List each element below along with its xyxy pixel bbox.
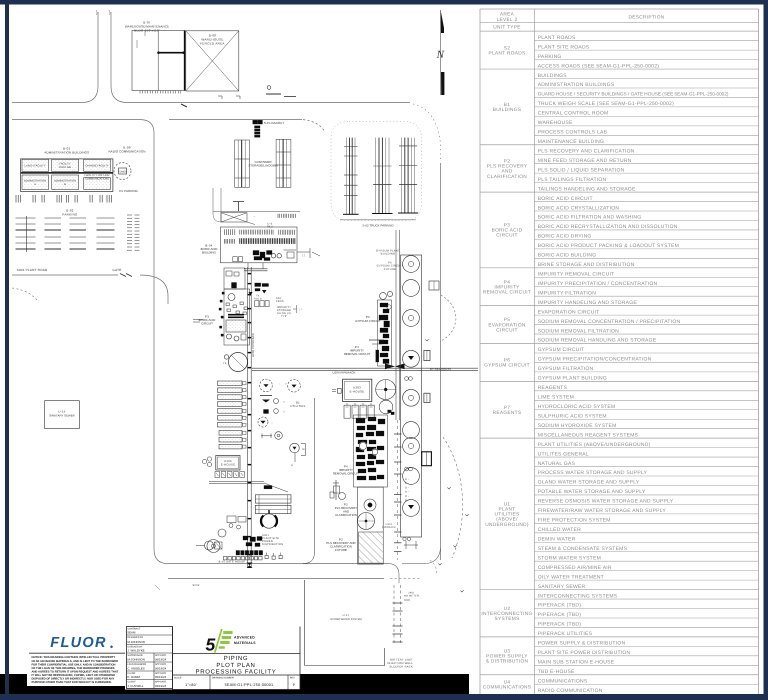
svg-text:PROCESS CONTROLS LAB: PROCESS CONTROLS LAB bbox=[538, 130, 608, 136]
svg-text:REAGENTS: REAGENTS bbox=[538, 385, 568, 391]
svg-text:BORIC ACID BUILDING: BORIC ACID BUILDING bbox=[538, 253, 597, 259]
svg-text:PURPOSE OTHER THAN THAT FOR WH: PURPOSE OTHER THAN THAT FOR WHICH IT IS … bbox=[32, 681, 112, 684]
svg-text:W: W bbox=[302, 448, 305, 451]
svg-text:ACCESS ROADS (SEE 5EAM-G1-PPL-: ACCESS ROADS (SEE 5EAM-G1-PPL-250-0002) bbox=[538, 63, 660, 69]
svg-text:BORIC ACID RECRYSTALLIZATION A: BORIC ACID RECRYSTALLIZATION AND DISSOLU… bbox=[538, 224, 678, 230]
svg-text:UNIT TYPE: UNIT TYPE bbox=[493, 25, 521, 31]
svg-text:IMPURITY: IMPURITY bbox=[494, 284, 520, 290]
svg-text:PIPERACK (TBD): PIPERACK (TBD) bbox=[538, 622, 582, 628]
svg-text:BUILDING: BUILDING bbox=[202, 251, 216, 255]
svg-text:NOTICE: THIS DRAWING CONTAINS: NOTICE: THIS DRAWING CONTAINS INTELLECTU… bbox=[32, 656, 116, 659]
svg-text:ADMINISTRATION BUILDINGS: ADMINISTRATION BUILDINGS bbox=[44, 151, 89, 155]
svg-text:06/19/24: 06/19/24 bbox=[155, 684, 167, 688]
svg-text:5: 5 bbox=[206, 635, 216, 655]
svg-text:BORIC ACID FILTRATION AND WASH: BORIC ACID FILTRATION AND WASHING bbox=[538, 215, 642, 221]
svg-text:FACILITY FIRST AID/: FACILITY FIRST AID/ bbox=[85, 174, 110, 177]
svg-text:PIPERACK UTILITIES: PIPERACK UTILITIES bbox=[538, 631, 593, 637]
svg-text:P6: P6 bbox=[504, 358, 510, 364]
svg-text:DEMIN WATER: DEMIN WATER bbox=[538, 536, 576, 542]
svg-text:5EAM-G1-PPL-250-00001: 5EAM-G1-PPL-250-00001 bbox=[225, 683, 274, 687]
svg-text:DISPOSED OF DIRECTLY OR INDIRE: DISPOSED OF DIRECTLY OR INDIRECTLY, NOR … bbox=[32, 678, 115, 681]
svg-text:COMMUNICATIONS: COMMUNICATIONS bbox=[538, 678, 588, 684]
svg-text:CHANGE FACILITY: CHANGE FACILITY bbox=[85, 165, 108, 168]
svg-text:BORIC ACID: BORIC ACID bbox=[492, 228, 523, 234]
svg-text:STORM WATER SYSTEM: STORM WATER SYSTEM bbox=[330, 618, 361, 621]
svg-text:S003: S003 bbox=[192, 584, 199, 587]
svg-text:=: = bbox=[283, 401, 285, 404]
svg-text:(ABOVE/: (ABOVE/ bbox=[496, 517, 518, 523]
svg-text:J. FUSSELL: J. FUSSELL bbox=[128, 684, 144, 688]
svg-text:STORAGE/LAYDOWN: STORAGE/LAYDOWN bbox=[248, 164, 277, 168]
svg-text:REV: REV bbox=[290, 676, 295, 679]
svg-text:P: P bbox=[293, 683, 296, 687]
svg-text:B: B bbox=[64, 183, 66, 186]
svg-text:SCALE: SCALE bbox=[174, 676, 182, 679]
svg-text:K. HAMM: K. HAMM bbox=[128, 675, 141, 679]
svg-text:ADMINISTRATION: ADMINISTRATION bbox=[54, 180, 76, 183]
svg-text:FLUOR: FLUOR bbox=[50, 635, 106, 651]
svg-text:D: D bbox=[291, 464, 293, 467]
svg-text:COMPRESSED AIR/MINE AIR: COMPRESSED AIR/MINE AIR bbox=[538, 565, 612, 571]
svg-text:=: = bbox=[285, 383, 287, 386]
svg-text:UTILITIES: UTILITIES bbox=[494, 512, 519, 518]
svg-text:TK: TK bbox=[256, 295, 260, 298]
svg-text:MINE FEED STORAGE AND RETURN: MINE FEED STORAGE AND RETURN bbox=[538, 158, 632, 164]
svg-text:06/19/24: 06/19/24 bbox=[155, 666, 167, 670]
svg-text:HO METER: HO METER bbox=[404, 595, 419, 598]
svg-text:COMMUNICATIONS: COMMUNICATIONS bbox=[85, 178, 109, 181]
svg-text:OILY WATER TREATMENT: OILY WATER TREATMENT bbox=[538, 574, 604, 580]
svg-text:PROD: PROD bbox=[276, 300, 284, 303]
svg-text:WAREHOUSE: WAREHOUSE bbox=[538, 120, 573, 126]
svg-text:CIRCUIT: CIRCUIT bbox=[496, 327, 518, 333]
svg-text:PLANT ROADS: PLANT ROADS bbox=[538, 35, 576, 41]
svg-text:GYPSUM CIRCUIT: GYPSUM CIRCUIT bbox=[538, 347, 585, 353]
svg-text:U201: U201 bbox=[386, 523, 393, 526]
svg-text:P5: P5 bbox=[504, 317, 510, 323]
svg-text:UNDERGROUND): UNDERGROUND) bbox=[485, 522, 529, 528]
svg-text:PLANT SITE POWER DISTRIBUTION: PLANT SITE POWER DISTRIBUTION bbox=[538, 650, 631, 656]
svg-text:SLEEPER RACK: SLEEPER RACK bbox=[390, 666, 414, 669]
svg-text:IMPURITY REMOVAL CIRCUIT: IMPURITY REMOVAL CIRCUIT bbox=[538, 272, 615, 278]
svg-text:BORIC ACID CIRCUIT: BORIC ACID CIRCUIT bbox=[538, 196, 593, 202]
svg-text:SODIUM HYDROXIDE SYSTEM: SODIUM HYDROXIDE SYSTEM bbox=[538, 423, 617, 429]
svg-text:BUILDING: BUILDING bbox=[381, 253, 396, 256]
svg-text:SODIUM REMOVAL HANDLING AND ST: SODIUM REMOVAL HANDLING AND STORAGE bbox=[538, 338, 657, 344]
svg-text:O -: O - bbox=[405, 486, 409, 489]
svg-text:MAINTENANCE BUILDING: MAINTENANCE BUILDING bbox=[538, 139, 604, 145]
svg-text:LUNCH FACILITY: LUNCH FACILITY bbox=[25, 165, 46, 168]
svg-text:IT WILL NOT BE REPRODUCED, COP: IT WILL NOT BE REPRODUCED, COPIED, LENT … bbox=[32, 674, 116, 677]
svg-text:FUTURE: FUTURE bbox=[335, 548, 347, 552]
svg-text:AND: AND bbox=[501, 169, 512, 175]
svg-text:MATERIALS: MATERIALS bbox=[234, 641, 256, 645]
svg-text:PLOT PLAN: PLOT PLAN bbox=[216, 662, 255, 669]
svg-text:::: :: bbox=[278, 383, 280, 386]
svg-text:INTERCONNECTING: INTERCONNECTING bbox=[481, 611, 532, 617]
svg-text:RADIO COMMUNICATION: RADIO COMMUNICATION bbox=[538, 688, 603, 694]
svg-text:N: N bbox=[436, 49, 445, 61]
svg-text:S-0 LOADOUT: S-0 LOADOUT bbox=[264, 121, 285, 125]
svg-text:S-02 TRUCK PARKING: S-02 TRUCK PARKING bbox=[362, 224, 394, 228]
svg-text:06/19/24: 06/19/24 bbox=[155, 657, 167, 661]
svg-text:CLARIFICATION: CLARIFICATION bbox=[335, 513, 357, 517]
svg-text:FIRST AID: FIRST AID bbox=[59, 166, 71, 169]
svg-text:POWER SUPPLY & DISTRIBUTION: POWER SUPPLY & DISTRIBUTION bbox=[538, 641, 626, 647]
svg-text:U204 PIPERACK: U204 PIPERACK bbox=[333, 371, 356, 375]
svg-text:U1: U1 bbox=[504, 501, 511, 507]
svg-text:DRAWING NUMBER: DRAWING NUMBER bbox=[212, 676, 234, 679]
svg-text:~·: ~· bbox=[254, 215, 257, 218]
svg-text:POTABLE WATER STORAGE AND SUPP: POTABLE WATER STORAGE AND SUPPLY bbox=[538, 489, 646, 495]
svg-text:ADMINISTRATION BUILDINGS: ADMINISTRATION BUILDINGS bbox=[538, 82, 615, 88]
svg-text:IMPURITY PRECIPITATION / CONCE: IMPURITY PRECIPITATION / CONCENTRATION bbox=[538, 281, 658, 287]
svg-text:STEAM & CONDENSATE SYSTEMS: STEAM & CONDENSATE SYSTEMS bbox=[538, 546, 628, 552]
svg-text:P3: P3 bbox=[504, 223, 510, 229]
svg-text:[ ]: [ ] bbox=[303, 254, 306, 257]
svg-text:MAIN SUB STATION E-HOUSE: MAIN SUB STATION E-HOUSE bbox=[538, 660, 615, 666]
svg-text:E-HOUSE: E-HOUSE bbox=[350, 390, 365, 394]
svg-text:UTILITIES: UTILITIES bbox=[290, 405, 305, 408]
svg-text:PLS RECOVERY: PLS RECOVERY bbox=[487, 164, 528, 170]
svg-text:B-05 GATE HOUSE: B-05 GATE HOUSE bbox=[219, 561, 246, 564]
svg-text:::: :: bbox=[271, 422, 273, 425]
svg-text:STORM WATER SYSTEM: STORM WATER SYSTEM bbox=[538, 555, 601, 561]
svg-text:MISCELLANEOUS REAGENT SYSTEMS: MISCELLANEOUS REAGENT SYSTEMS bbox=[538, 432, 639, 438]
svg-text:FIREWATER/RAW WATER STORAGE AN: FIREWATER/RAW WATER STORAGE AND SUPPLY bbox=[538, 508, 667, 514]
svg-text:TBD E-HOUSE: TBD E-HOUSE bbox=[538, 669, 575, 675]
svg-text:DESCRIPTION: DESCRIPTION bbox=[628, 15, 664, 21]
svg-text:U-17: U-17 bbox=[343, 614, 350, 617]
svg-text:TK: TK bbox=[223, 362, 227, 365]
svg-text:1"=80': 1"=80' bbox=[185, 683, 197, 687]
svg-text:RADIO COMMUNICATION: RADIO COMMUNICATION bbox=[108, 150, 145, 154]
svg-text:P4: P4 bbox=[504, 279, 510, 285]
svg-text:SANITARY SEWER: SANITARY SEWER bbox=[49, 414, 74, 418]
svg-text:O -: O - bbox=[405, 499, 409, 502]
svg-text:FUTURE: FUTURE bbox=[384, 268, 396, 271]
svg-text:FACILITY: FACILITY bbox=[59, 163, 71, 166]
svg-text:SULPHURIC ACID SYSTEM: SULPHURIC ACID SYSTEM bbox=[538, 413, 607, 419]
svg-text:SYSTEMS: SYSTEMS bbox=[494, 616, 519, 622]
svg-text:S001 PLANT ROAD: S001 PLANT ROAD bbox=[17, 268, 48, 272]
svg-text:TOWER: TOWER bbox=[118, 171, 127, 174]
svg-text:O -: O - bbox=[405, 495, 409, 498]
svg-text:REMOVAL CIRCUIT: REMOVAL CIRCUIT bbox=[333, 472, 360, 476]
svg-text:P7: P7 bbox=[504, 405, 510, 411]
svg-text:AND AGREES TO RETURN IT UPON R: AND AGREES TO RETURN IT UPON REQUEST AND… bbox=[32, 670, 119, 673]
svg-text:UTILITES GENERAL: UTILITES GENERAL bbox=[538, 451, 589, 457]
svg-text:DISTRIBUTION: DISTRIBUTION bbox=[262, 543, 283, 546]
svg-text:PLS TAILINGS FILTRATION: PLS TAILINGS FILTRATION bbox=[538, 177, 607, 183]
svg-text:HOLD: HOLD bbox=[254, 297, 262, 300]
svg-text:PIPERACK (TBD): PIPERACK (TBD) bbox=[538, 612, 582, 618]
svg-text:IMPURITY FILTRATION: IMPURITY FILTRATION bbox=[538, 290, 597, 296]
svg-text:DRY: DRY bbox=[276, 297, 282, 300]
svg-text:M.JOHNSON: M.JOHNSON bbox=[128, 657, 145, 661]
svg-text:P7 REAGENTS: P7 REAGENTS bbox=[430, 367, 451, 371]
svg-text:PARKING: PARKING bbox=[538, 54, 562, 60]
svg-text:GUARD HOUSE / SECURITY BUILDIN: GUARD HOUSE / SECURITY BUILDINGS / GATE … bbox=[538, 92, 729, 97]
svg-text:06/19/24: 06/19/24 bbox=[155, 675, 167, 679]
svg-text:PLS RECOVERY AND CLARIFICATION: PLS RECOVERY AND CLARIFICATION bbox=[538, 148, 635, 154]
svg-text:SANITARY SEWER: SANITARY SEWER bbox=[538, 584, 586, 590]
svg-text:LIME SYSTEM: LIME SYSTEM bbox=[538, 395, 574, 401]
svg-text:FENCED AREA: FENCED AREA bbox=[200, 42, 224, 46]
svg-text:& DISTRIBUTION: & DISTRIBUTION bbox=[486, 659, 529, 665]
svg-text:P2: P2 bbox=[504, 158, 510, 164]
svg-text:GYPSUM FILTRATION: GYPSUM FILTRATION bbox=[538, 366, 594, 372]
svg-text:PIPERACK: PIPERACK bbox=[382, 526, 396, 529]
svg-text:BUILDINGS: BUILDINGS bbox=[493, 107, 522, 113]
svg-text:GYPSUM PLANT BUILDING: GYPSUM PLANT BUILDING bbox=[538, 376, 607, 382]
svg-text:GYPSUM CIRCUIT: GYPSUM CIRCUIT bbox=[484, 363, 530, 369]
svg-text:EV PARKING: EV PARKING bbox=[119, 189, 138, 193]
svg-text:PLANT ROADS: PLANT ROADS bbox=[488, 50, 525, 56]
svg-text:OF 5E ADVANCED MATERIALS, AND: OF 5E ADVANCED MATERIALS, AND IS LENT TO… bbox=[32, 660, 119, 663]
svg-text:ADVANCED: ADVANCED bbox=[234, 636, 255, 640]
svg-text:BORIC ACID CRYSTALLIZATION: BORIC ACID CRYSTALLIZATION bbox=[538, 205, 620, 211]
svg-text:BORIC ACID DRYING: BORIC ACID DRYING bbox=[538, 234, 592, 240]
svg-text:A: A bbox=[34, 183, 36, 186]
svg-text:U3: U3 bbox=[504, 648, 511, 654]
svg-text:PIPERACK (TBD): PIPERACK (TBD) bbox=[538, 603, 582, 609]
svg-text:HYDROCLORIC ACID SYSTEM: HYDROCLORIC ACID SYSTEM bbox=[538, 404, 616, 410]
svg-text:O -: O - bbox=[405, 491, 409, 494]
svg-text:NATURAL GAS: NATURAL GAS bbox=[538, 461, 576, 467]
svg-text:IMPURITY HANDELING AND STORAGE: IMPURITY HANDELING AND STORAGE bbox=[538, 300, 638, 306]
svg-text:BORIC ACID PRODUCT PACKING & L: BORIC ACID PRODUCT PACKING & LOADOUT SYS… bbox=[538, 243, 679, 249]
svg-text:DESIGNED BY: DESIGNED BY bbox=[128, 636, 144, 639]
svg-text:REMOVAL CIRCUIT: REMOVAL CIRCUIT bbox=[483, 290, 531, 296]
svg-text:AREA: AREA bbox=[500, 12, 515, 18]
svg-text:| /·: | /· bbox=[299, 308, 303, 311]
svg-text:OF THE LOAN OF THIS DRAWING, T: OF THE LOAN OF THIS DRAWING, THE BORROWE… bbox=[32, 667, 115, 670]
svg-text:PLANT: PLANT bbox=[499, 506, 516, 512]
svg-text:J. WALDYKE: J. WALDYKE bbox=[128, 648, 145, 652]
svg-text:CHILLED WATER: CHILLED WATER bbox=[538, 527, 581, 533]
svg-text:U4: U4 bbox=[504, 679, 511, 685]
svg-text:CIRCUIT: CIRCUIT bbox=[496, 233, 518, 239]
svg-text:COMMUNICATIONS: COMMUNICATIONS bbox=[483, 684, 532, 690]
svg-text:TAILINGS HANDELING AND STORAGE: TAILINGS HANDELING AND STORAGE bbox=[538, 186, 636, 192]
svg-text:U200 PIPERACK: U200 PIPERACK bbox=[251, 333, 255, 357]
svg-text:BRINE STORAGE AND DISTRIBUTION: BRINE STORAGE AND DISTRIBUTION bbox=[538, 262, 635, 268]
svg-text:GYPSUM CIRCUIT: GYPSUM CIRCUIT bbox=[355, 319, 381, 323]
svg-text:=: = bbox=[283, 411, 285, 414]
svg-text:EVAPORATION: EVAPORATION bbox=[488, 322, 525, 328]
svg-text:REAGENTS: REAGENTS bbox=[493, 410, 522, 416]
svg-text:TRUCK WEIGH SCALE (SEE 5EAM-G1: TRUCK WEIGH SCALE (SEE 5EAM-G1-PPL-250-0… bbox=[538, 101, 674, 107]
svg-text:PROCESS WATER STORAGE AND SUPP: PROCESS WATER STORAGE AND SUPPLY bbox=[538, 470, 648, 476]
svg-text:M.JOHNSON: M.JOHNSON bbox=[128, 640, 145, 644]
svg-text:PARKING: PARKING bbox=[62, 213, 78, 217]
svg-text:POWER SUPPLY: POWER SUPPLY bbox=[486, 654, 528, 660]
svg-text:C. ANGELES: C. ANGELES bbox=[128, 666, 145, 670]
svg-text:SODIUM REMOVAL FILTRATION: SODIUM REMOVAL FILTRATION bbox=[538, 328, 619, 334]
svg-text:E-HOUSE: E-HOUSE bbox=[221, 464, 235, 467]
svg-text:5EAM: 5EAM bbox=[128, 630, 136, 634]
svg-text:PLANT SITE ROADS: PLANT SITE ROADS bbox=[538, 44, 590, 50]
svg-text:B1: B1 bbox=[504, 102, 510, 108]
svg-text:INTERCONNECTING SYSTEMS: INTERCONNECTING SYSTEMS bbox=[538, 593, 618, 599]
svg-text:U306: U306 bbox=[224, 460, 232, 463]
svg-text:CIRCUIT: CIRCUIT bbox=[201, 322, 213, 326]
svg-text:GYPSUM PRECIPITATION/CONCENTRA: GYPSUM PRECIPITATION/CONCENTRATION bbox=[538, 357, 652, 363]
svg-text:INJECTION WELL: INJECTION WELL bbox=[387, 662, 413, 665]
svg-text:EVAPORATION CIRCUIT: EVAPORATION CIRCUIT bbox=[538, 309, 600, 315]
svg-text:PROCESSING FACILITY: PROCESSING FACILITY bbox=[196, 668, 277, 675]
svg-text:S2: S2 bbox=[504, 45, 510, 51]
svg-text:REVERSE OSMOSIS WATER STORAGE: REVERSE OSMOSIS WATER STORAGE AND SUPPLY bbox=[538, 499, 674, 505]
svg-text:PLS SOLID / LIQUID SEPARATION: PLS SOLID / LIQUID SEPARATION bbox=[538, 167, 625, 173]
svg-text:FIRE PROTECTION SYSTEM: FIRE PROTECTION SYSTEM bbox=[538, 518, 611, 524]
svg-text:PIPING: PIPING bbox=[224, 655, 249, 662]
svg-text:CLARIFICATION: CLARIFICATION bbox=[487, 174, 527, 180]
svg-text:GLAND WATER STORAGE AND SUPPLY: GLAND WATER STORAGE AND SUPPLY bbox=[538, 480, 640, 486]
svg-text:SODIUM REMOVAL CONCENTRATION /: SODIUM REMOVAL CONCENTRATION / PRECIPITA… bbox=[538, 319, 681, 325]
svg-text:REMOVAL CIRCUIT: REMOVAL CIRCUIT bbox=[344, 352, 371, 356]
svg-text:TYP: TYP bbox=[281, 315, 287, 318]
svg-text:CENTRAL CONTROL ROOM: CENTRAL CONTROL ROOM bbox=[538, 111, 609, 117]
svg-text:BATTERY LIMIT: BATTERY LIMIT bbox=[390, 659, 413, 662]
svg-text:FOR THEIR CONFIDENTIAL USE ONL: FOR THEIR CONFIDENTIAL USE ONLY, AND IN … bbox=[32, 663, 116, 666]
svg-text:O -: O - bbox=[405, 482, 409, 485]
svg-text:BUILDINGS: BUILDINGS bbox=[538, 73, 568, 79]
svg-text:O -: O - bbox=[405, 478, 409, 481]
svg-text:ADMINISTRATION: ADMINISTRATION bbox=[24, 180, 46, 183]
svg-text:LEVEL 2: LEVEL 2 bbox=[497, 17, 518, 23]
svg-text:PLANT UTILITIES (ABOVE/UNDERGR: PLANT UTILITIES (ABOVE/UNDERGROUND) bbox=[538, 442, 651, 448]
svg-text:GATE: GATE bbox=[113, 268, 122, 272]
svg-text:U2: U2 bbox=[504, 606, 511, 612]
